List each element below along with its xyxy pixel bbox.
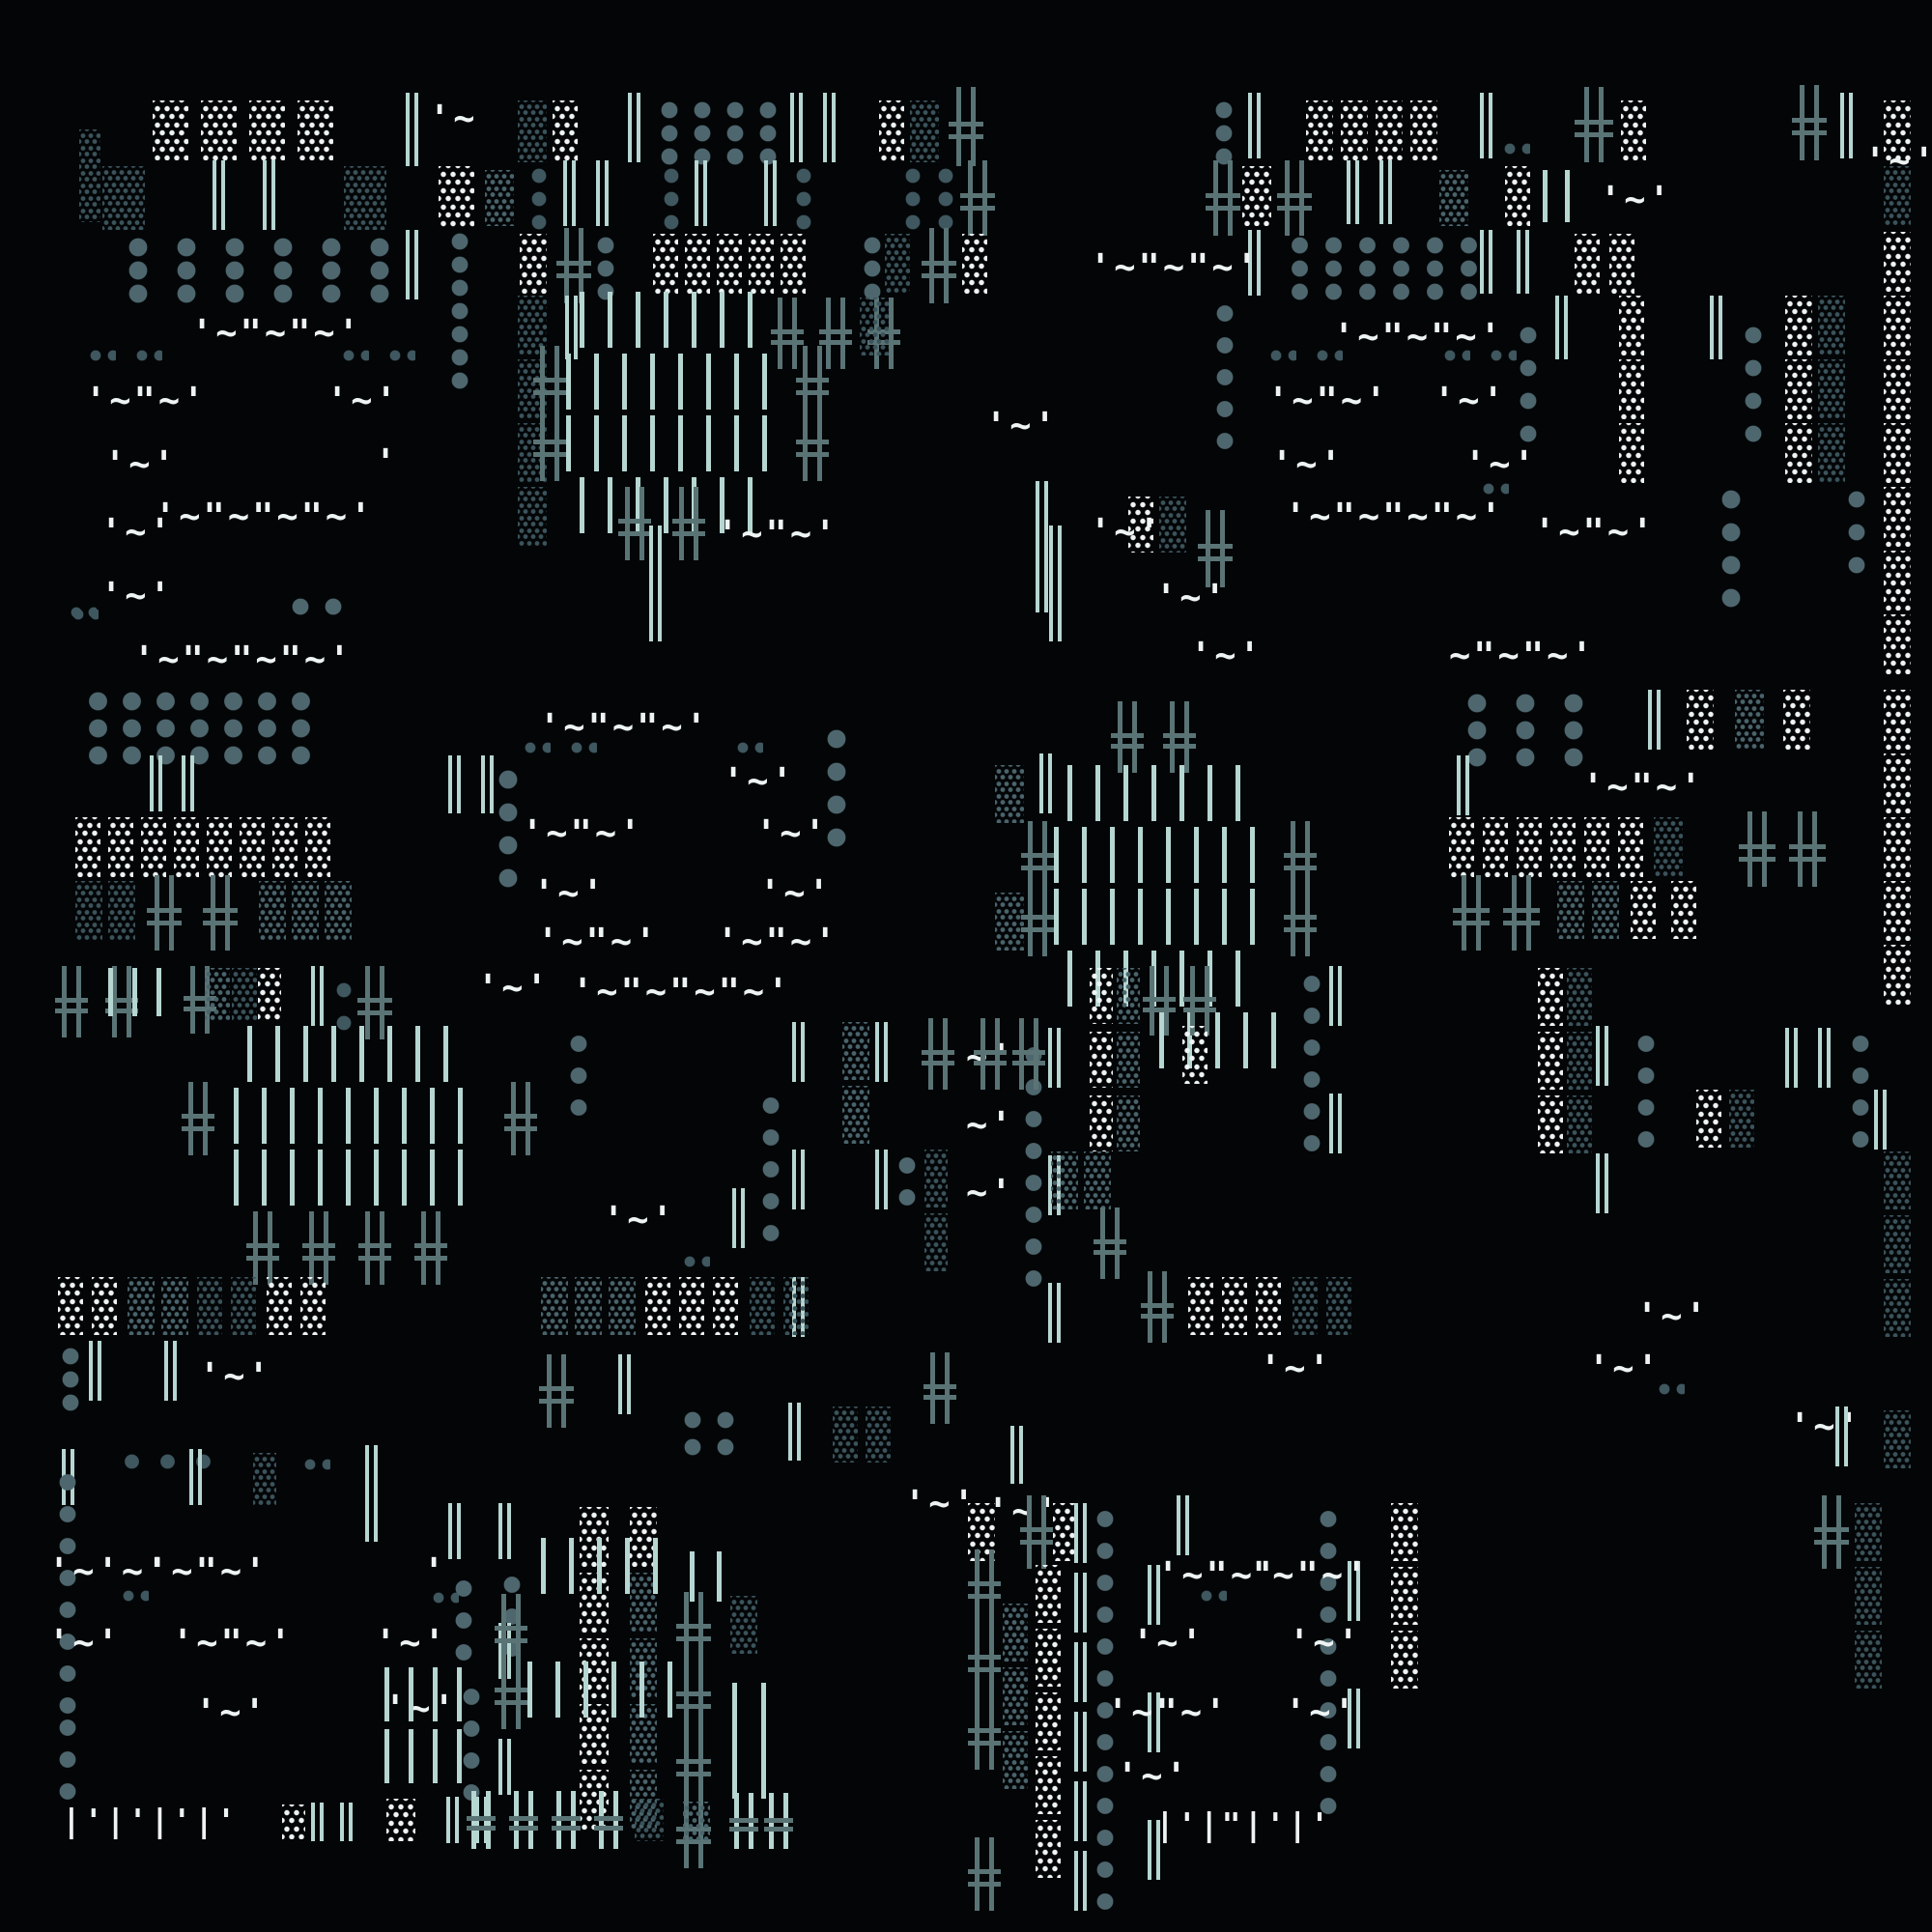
- shade-block: [520, 234, 547, 294]
- shade-block: [1036, 1629, 1061, 1687]
- cross-horizontal: [974, 1061, 1007, 1065]
- cross-horizontal: [1284, 866, 1317, 870]
- shade-block: [1538, 968, 1563, 1026]
- cross-horizontal: [358, 1243, 391, 1248]
- cross-horizontal: [302, 1256, 335, 1261]
- shade-block: [386, 1799, 415, 1841]
- tilde-marks: '~': [375, 1625, 448, 1661]
- double-bar: [1480, 93, 1492, 158]
- cross-glyph: [1206, 160, 1240, 236]
- cross-glyph: [539, 1354, 574, 1428]
- shade-block: [1855, 1503, 1882, 1561]
- cross-horizontal: [357, 1010, 392, 1015]
- cross-vertical: [1028, 883, 1033, 956]
- bar: [1123, 765, 1128, 821]
- bar: [1110, 827, 1115, 883]
- cross-horizontal: [1739, 844, 1776, 849]
- shade-block: [439, 166, 474, 228]
- bar: [1207, 765, 1212, 821]
- dot-grid: [114, 236, 404, 305]
- cross-horizontal: [676, 1704, 711, 1709]
- cross-vertical: [309, 1211, 314, 1285]
- bar: [1054, 889, 1059, 945]
- shade-block: [1584, 817, 1609, 877]
- bar: [566, 354, 571, 410]
- shade-block: [1188, 1277, 1213, 1335]
- tilde-marks: '~': [1132, 1625, 1206, 1661]
- shade-block: [1696, 1090, 1721, 1148]
- bar: [318, 1150, 323, 1206]
- double-bar: [1074, 1642, 1087, 1702]
- double-bar: [213, 160, 225, 230]
- cross-glyph: [1277, 160, 1312, 236]
- bar: [622, 354, 627, 410]
- cross-horizontal: [922, 273, 956, 278]
- cross-glyph: [55, 966, 88, 1037]
- shade-block: [541, 1277, 568, 1335]
- small-dot-pair: [734, 742, 763, 753]
- shade-block: [1306, 100, 1333, 160]
- cross-vertical: [679, 487, 684, 560]
- bar: [650, 354, 655, 410]
- shade-block: [1517, 817, 1542, 877]
- double-bar: [618, 1354, 631, 1414]
- double-bar: [1840, 93, 1853, 158]
- cross-horizontal: [1021, 927, 1054, 932]
- cross-vertical: [1462, 875, 1466, 951]
- cross-horizontal: [1814, 1540, 1849, 1545]
- bar: [433, 1667, 438, 1721]
- tilde-marks: '~"~': [1248, 1557, 1370, 1593]
- dot-grid: [114, 1453, 221, 1470]
- cross-glyph: [147, 875, 182, 951]
- cross-horizontal: [1021, 853, 1054, 858]
- dot-grid: [896, 164, 962, 234]
- double-bar: [1248, 93, 1261, 158]
- cross-glyph: [1503, 875, 1540, 951]
- cross-vertical: [1584, 87, 1589, 162]
- cross-horizontal: [949, 122, 983, 127]
- shade-block: [1884, 945, 1911, 1005]
- double-bar: [695, 160, 707, 226]
- cross-horizontal: [676, 1759, 711, 1764]
- tilde-marks: '~"~': [147, 1553, 269, 1589]
- double-bar: [365, 1445, 378, 1542]
- bar: [622, 415, 627, 471]
- tilde-marks: '~': [48, 1625, 122, 1661]
- double-bar: [1177, 1495, 1189, 1555]
- tilde-marks: '~': [104, 446, 178, 482]
- shade-block: [1884, 753, 1911, 813]
- shade-block: [713, 1277, 738, 1335]
- shade-block: [1818, 296, 1845, 355]
- cross-vertical: [968, 160, 973, 236]
- tilde-marks: ': [423, 1553, 447, 1589]
- bar: [458, 1088, 463, 1144]
- tilde-marks: ~': [966, 1107, 1015, 1143]
- tilde-marks: '~"~': [1107, 1694, 1229, 1730]
- cross-horizontal: [1020, 1540, 1053, 1545]
- shade-block: [1538, 1032, 1563, 1090]
- bar: [639, 1662, 644, 1718]
- cross-vertical: [1027, 1495, 1032, 1569]
- bar: [262, 1150, 267, 1206]
- shade-block: [1449, 817, 1474, 877]
- shade-block: [609, 1277, 636, 1335]
- shade-block: [1884, 359, 1911, 419]
- cross-vertical: [1526, 875, 1531, 951]
- shade-block: [232, 968, 257, 1022]
- double-bar: [1710, 296, 1722, 359]
- cross-horizontal: [676, 1624, 711, 1629]
- bar: [1250, 889, 1255, 945]
- tilde-marks: '~': [195, 1694, 269, 1730]
- cross-vertical: [511, 1082, 516, 1155]
- bar: [1194, 889, 1199, 945]
- shade-block: [1884, 614, 1911, 674]
- cross-vertical: [1041, 1495, 1046, 1569]
- cross-glyph: [1012, 1018, 1045, 1090]
- cross-vertical: [971, 87, 976, 166]
- cross-vertical: [625, 487, 630, 560]
- double-bar: [1048, 1283, 1061, 1343]
- cross-glyph: [1141, 1271, 1174, 1343]
- cross-vertical: [1299, 160, 1304, 236]
- small-dot-pair: [340, 350, 369, 361]
- cross-vertical: [1836, 1495, 1841, 1569]
- shade-block: [653, 234, 678, 294]
- cross-horizontal: [556, 273, 591, 278]
- shade-block: [860, 298, 889, 355]
- bar: [678, 354, 683, 410]
- cross-glyph: [922, 228, 956, 303]
- tilde-marks: '~': [1190, 638, 1264, 673]
- shade-block: [1618, 817, 1643, 877]
- bar: [409, 1667, 413, 1721]
- cross-horizontal: [968, 1882, 1001, 1887]
- cross-glyph: [203, 875, 238, 951]
- shade-block: [1785, 296, 1812, 355]
- bar: [409, 1729, 413, 1783]
- bar: [1236, 765, 1240, 821]
- cross-glyph: [1453, 875, 1490, 951]
- cross-vertical: [1206, 510, 1210, 587]
- cross-horizontal: [467, 1816, 496, 1821]
- cross-horizontal: [539, 1399, 574, 1404]
- shade-block: [1567, 968, 1592, 1026]
- shade-block: [1884, 487, 1911, 547]
- small-dot-pair: [568, 742, 597, 753]
- double-bar: [823, 93, 836, 162]
- bar: [458, 1150, 463, 1206]
- cross-horizontal: [509, 1826, 538, 1831]
- bar: [132, 968, 137, 1016]
- shade-block: [1592, 881, 1619, 939]
- shade-block: [92, 1277, 117, 1335]
- cross-glyph: [764, 1793, 793, 1849]
- shade-block: [1439, 170, 1468, 226]
- cross-horizontal: [495, 1688, 527, 1692]
- cross-glyph: [960, 160, 995, 236]
- cross-horizontal: [1789, 844, 1826, 849]
- bar: [1543, 170, 1548, 222]
- dot-grid: [1847, 483, 1866, 582]
- shade-block: [298, 100, 333, 160]
- double-bar: [89, 1341, 101, 1401]
- cross-vertical: [540, 408, 545, 481]
- double-bar: [1329, 966, 1342, 1026]
- shade-block: [575, 1277, 602, 1335]
- bar: [1166, 889, 1171, 945]
- shade-block: [1855, 1631, 1882, 1689]
- shade-block: [1884, 817, 1911, 877]
- cross-horizontal: [1020, 1527, 1053, 1532]
- tilde-marks: '~"~': [85, 383, 207, 418]
- tilde-marks: '~': [1271, 446, 1345, 482]
- dot-grid: [827, 723, 846, 854]
- tilde-marks: '~': [1285, 1694, 1358, 1730]
- dot-grid: [1519, 319, 1538, 450]
- shade-block: [102, 166, 145, 230]
- cross-horizontal: [819, 329, 852, 334]
- bar: [331, 1026, 336, 1082]
- cross-horizontal: [1198, 544, 1233, 549]
- small-dot-pair: [1314, 350, 1343, 361]
- bar: [262, 1088, 267, 1144]
- cross-horizontal: [594, 1816, 623, 1821]
- shade-block: [1090, 1095, 1113, 1151]
- shade-block: [1550, 817, 1576, 877]
- bar: [611, 1662, 616, 1718]
- bar: [583, 1662, 588, 1718]
- bar: [664, 477, 668, 533]
- bar: [608, 292, 612, 348]
- shade-block: [1619, 423, 1644, 483]
- bar: [1067, 765, 1072, 821]
- dot-grid: [795, 164, 812, 234]
- shade-block: [1884, 881, 1911, 941]
- shade-block: [1621, 100, 1646, 160]
- tilde-marks: '~"~': [717, 516, 838, 552]
- cross-vertical: [698, 1592, 703, 1665]
- bar: [636, 292, 640, 348]
- shade-block: [783, 1277, 809, 1335]
- cross-horizontal: [771, 329, 804, 334]
- bar: [1067, 951, 1072, 1007]
- shade-block: [249, 100, 285, 160]
- shade-block: [344, 166, 386, 230]
- cross-horizontal: [968, 1728, 1001, 1733]
- shade-block: [995, 765, 1024, 823]
- bar: [1179, 765, 1184, 821]
- dot-grid: [530, 164, 548, 234]
- double-bar: [1379, 160, 1392, 224]
- shade-block: [305, 817, 330, 877]
- bar: [555, 1662, 560, 1718]
- cross-horizontal: [358, 1256, 391, 1261]
- bar: [374, 1150, 379, 1206]
- shade-block: [1410, 100, 1437, 160]
- cross-horizontal: [676, 1636, 711, 1641]
- shade-block: [1884, 690, 1911, 750]
- cross-vertical: [698, 1660, 703, 1733]
- cross-horizontal: [1198, 556, 1233, 561]
- cross-vertical: [1599, 87, 1604, 162]
- cross-horizontal: [1739, 857, 1776, 862]
- bar: [594, 354, 599, 410]
- bar: [457, 1667, 462, 1721]
- shade-block: [1575, 234, 1600, 294]
- double-bar: [764, 160, 777, 226]
- cross-glyph: [1284, 883, 1317, 956]
- cross-vertical: [155, 875, 159, 951]
- bar: [1243, 1012, 1248, 1068]
- double-bar: [498, 1739, 511, 1795]
- double-bar: [481, 755, 494, 813]
- bar: [1082, 889, 1087, 945]
- shade-block: [1505, 166, 1530, 226]
- tilde-marks: '~': [1464, 446, 1538, 482]
- shade-block: [1182, 1026, 1207, 1084]
- cross-horizontal: [618, 531, 651, 536]
- cross-vertical: [421, 1211, 426, 1285]
- cross-glyph: [676, 1592, 711, 1665]
- shade-block: [1818, 359, 1845, 419]
- shade-block: [153, 100, 188, 160]
- tilde-marks: '~': [1789, 1408, 1862, 1444]
- cross-vertical: [803, 408, 808, 481]
- cross-glyph: [974, 1018, 1007, 1090]
- double-bar: [1010, 1426, 1023, 1484]
- bar: [346, 1150, 351, 1206]
- double-bar: [790, 93, 803, 162]
- shade-block: [1567, 1095, 1592, 1153]
- shade-block: [1884, 1151, 1911, 1209]
- tilde-marks: '~"~': [172, 1625, 294, 1661]
- double-bar: [1074, 1781, 1087, 1841]
- cross-vertical: [975, 1696, 980, 1770]
- tilde-marks: '~': [1260, 1350, 1333, 1386]
- shade-block: [1884, 296, 1911, 355]
- shade-block: [730, 1596, 757, 1654]
- cross-horizontal: [796, 378, 829, 383]
- double-bar: [1517, 230, 1529, 294]
- cross-horizontal: [556, 261, 591, 266]
- double-bar: [448, 755, 461, 813]
- cross-horizontal: [729, 1827, 758, 1832]
- small-dot-pair: [120, 1590, 149, 1602]
- tilde-marks: '~"~"~': [539, 709, 710, 745]
- cross-vertical: [989, 1549, 994, 1623]
- bar: [650, 415, 655, 471]
- shade-block: [1159, 497, 1186, 553]
- tilde-marks: '~"~"~"~': [155, 498, 374, 534]
- bar: [717, 1551, 722, 1602]
- cross-horizontal: [509, 1816, 538, 1821]
- tilde-marks: '~': [1434, 383, 1507, 418]
- cross-vertical: [1512, 875, 1517, 951]
- cross-horizontal: [764, 1818, 793, 1823]
- cross-glyph: [968, 1549, 1001, 1623]
- shade-block: [1003, 1604, 1028, 1662]
- cross-horizontal: [1277, 206, 1312, 211]
- cross-horizontal: [968, 1741, 1001, 1746]
- double-bar: [792, 1150, 805, 1209]
- shade-block: [1785, 359, 1812, 419]
- cross-horizontal: [923, 1384, 956, 1389]
- shade-block: [1391, 1631, 1418, 1689]
- cross-horizontal: [504, 1126, 537, 1131]
- cross-horizontal: [467, 1826, 496, 1831]
- small-dot-pair: [681, 1256, 710, 1267]
- shade-block: [1729, 1090, 1754, 1148]
- bar: [732, 1683, 737, 1799]
- cross-vertical: [547, 1354, 552, 1428]
- shade-block: [75, 817, 100, 877]
- cross-glyph: [923, 1352, 956, 1424]
- cross-vertical: [1762, 811, 1767, 887]
- shade-block: [679, 1277, 704, 1335]
- cross-vertical: [944, 228, 949, 303]
- cross-horizontal: [796, 440, 829, 444]
- cross-glyph: [1111, 701, 1144, 773]
- dot-grid: [676, 1406, 742, 1461]
- shade-block: [1785, 423, 1812, 483]
- shade-block: [885, 234, 910, 294]
- shade-block: [197, 1277, 222, 1335]
- tilde-marks: '~': [384, 1690, 458, 1726]
- cross-glyph: [182, 1082, 214, 1155]
- cross-horizontal: [1503, 921, 1540, 925]
- shade-block: [201, 100, 237, 160]
- tilde-marks: '~': [100, 514, 174, 550]
- tilde-marks: '~"~"~"~': [133, 641, 353, 677]
- shade-block: [58, 1277, 83, 1335]
- bar: [761, 1683, 766, 1799]
- dot-grid: [1215, 298, 1235, 457]
- shade-block: [1884, 166, 1911, 226]
- shade-block: [272, 817, 298, 877]
- cross-vertical: [1814, 85, 1819, 160]
- double-bar: [875, 1022, 888, 1082]
- tilde-marks: '~': [1600, 182, 1673, 217]
- cross-glyph: [414, 1211, 447, 1285]
- small-dot-pair: [301, 1459, 330, 1470]
- cross-vertical: [188, 1082, 193, 1155]
- dot-grid: [58, 1466, 77, 1721]
- shade-block: [292, 881, 319, 941]
- cross-vertical: [1800, 85, 1804, 160]
- double-bar: [1049, 526, 1062, 641]
- shade-block: [1117, 1095, 1140, 1151]
- cross-vertical: [1476, 875, 1481, 951]
- cross-vertical: [1213, 160, 1218, 236]
- ascii-art-canvas: '~'~''~''~"~"~''~"~''~''~'''~"~"~"~''~"~…: [0, 0, 1932, 1932]
- bar: [527, 1662, 532, 1718]
- shade-block: [282, 1804, 305, 1839]
- cross-horizontal: [960, 193, 995, 198]
- shade-block: [1654, 817, 1683, 877]
- cross-vertical: [516, 1656, 521, 1729]
- cross-vertical: [561, 1354, 566, 1428]
- shade-block: [1117, 968, 1140, 1024]
- bar: [1138, 827, 1143, 883]
- double-bar: [732, 1188, 745, 1248]
- shade-block: [1128, 497, 1153, 553]
- cross-horizontal: [968, 1667, 1001, 1672]
- dot-grid: [761, 1090, 781, 1249]
- cross-horizontal: [55, 998, 88, 1003]
